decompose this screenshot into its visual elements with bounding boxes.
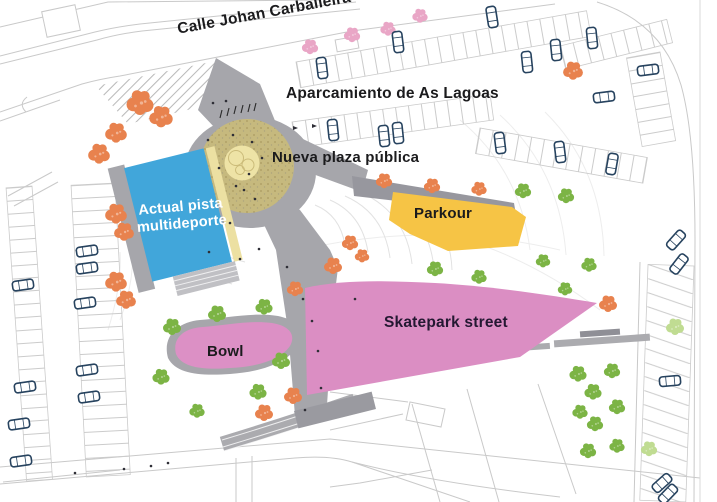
site-plan-canvas [0,0,717,502]
car-icon [76,245,98,257]
orange-tree-icon [599,296,617,313]
car-icon [586,27,598,49]
green-tree-icon [471,270,486,284]
car-icon [316,57,328,79]
car-icon [486,6,499,28]
skatepark-label: Skatepark street [384,314,508,332]
green-tree-icon [609,399,625,414]
west-parking-stalls [6,183,130,481]
car-icon [378,125,390,147]
green-tree-icon [249,384,266,400]
green-tree-icon [581,258,596,272]
green-tree-icon [163,319,181,336]
car-icon [554,141,566,163]
green-tree-icon [189,404,204,418]
green-tree-icon [604,363,620,378]
green-tree-icon [587,416,603,431]
green-tree-icon [427,261,443,276]
orange-tree-icon [88,144,110,164]
green-tree-icon [558,282,572,295]
green-tree-icon [609,439,624,453]
green-tree-icon [536,254,550,267]
green-tree-icon [558,188,574,203]
car-icon [521,51,533,73]
parkour-label: Parkour [414,205,472,222]
car-icon [327,119,339,141]
green-tree-icon [255,299,272,315]
car-icon [494,132,506,154]
orange-tree-icon [255,405,273,422]
car-icon [74,297,96,309]
parking-label: Aparcamiento de As Lagoas [286,85,499,103]
car-icon [76,262,98,274]
car-icon [8,418,30,430]
bowl-label: Bowl [207,343,244,360]
car-icon [14,381,36,393]
green-tree-icon [584,384,601,400]
car-icon [593,91,615,103]
pink-tree-icon [302,39,318,54]
car-icon [659,375,681,386]
site-plan: Calle Johan Carballeira Aparcamiento de … [0,0,717,502]
green-tree-icon [152,369,169,385]
orange-tree-icon [355,249,369,262]
pink-tree-icon [412,9,427,23]
car-icon [392,31,404,53]
green-tree-icon [572,405,587,419]
car-icon [550,39,562,61]
car-icon [665,229,686,251]
plaza-label: Nueva plaza pública [272,149,419,166]
green-tree-icon [580,443,596,458]
car-icon [392,122,404,144]
orange-tree-icon [105,123,127,143]
car-icon [76,364,98,376]
car-icon [78,391,100,403]
car-icon [637,64,659,76]
orange-tree-icon [471,182,486,196]
green-tree-icon [569,366,586,382]
green-tree-icon [515,183,531,198]
orange-tree-icon [342,235,358,250]
car-icon [10,455,32,467]
skatepark-zone [305,281,597,395]
bench-bar [580,329,620,338]
car-icon [12,279,34,291]
